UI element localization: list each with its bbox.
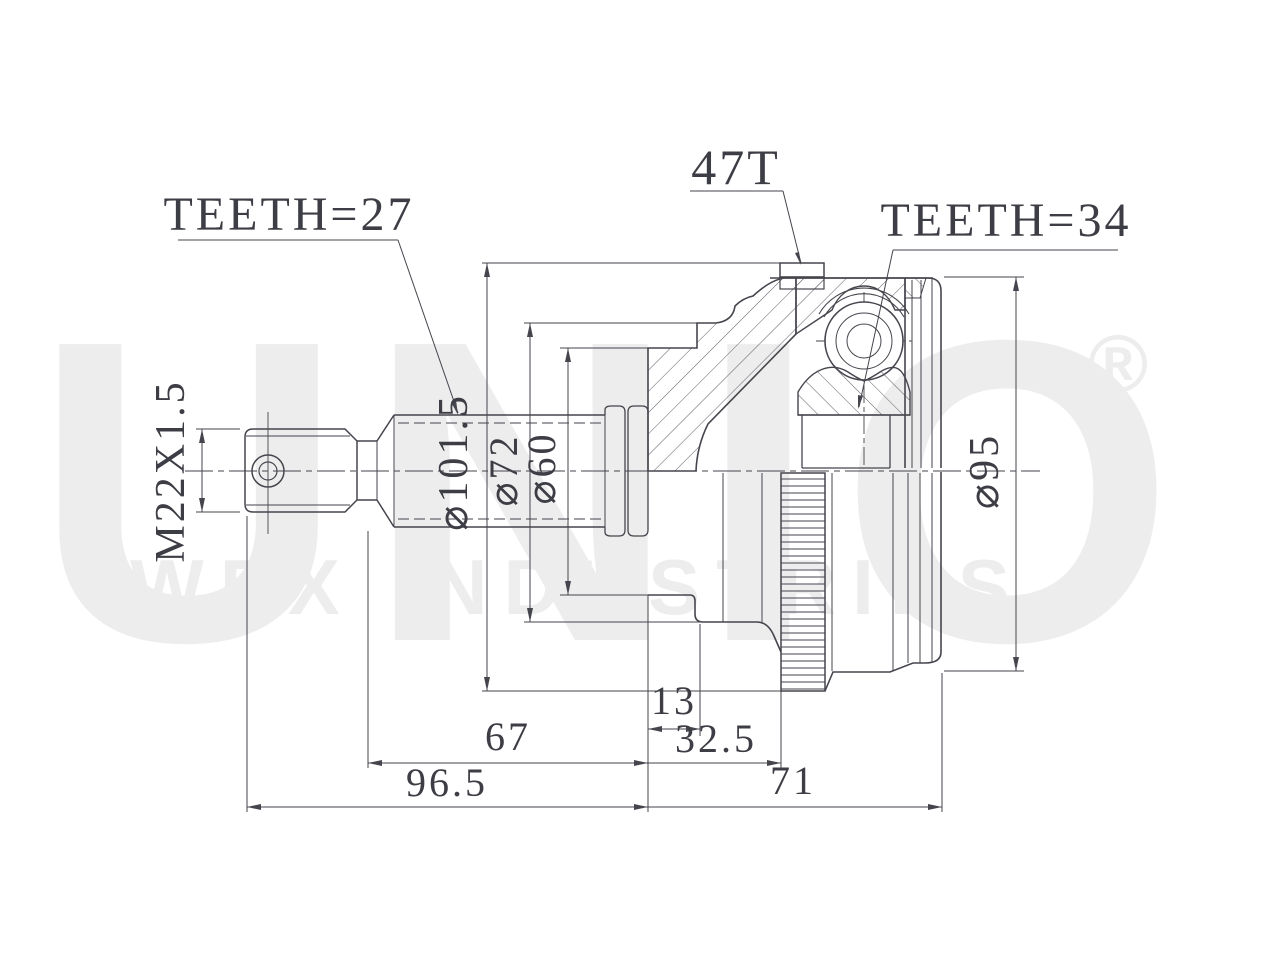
watermark-subtitle: WEX INDUSTRIES — [130, 543, 1026, 631]
ring-outer-dia-label: ⌀101.5 — [431, 393, 477, 531]
abs-tooth-band — [781, 473, 825, 691]
drawing-canvas: UNIO ® WEX INDUSTRIES — [0, 0, 1280, 960]
joint-spline-teeth-label: TEETH=34 — [880, 194, 1131, 247]
cv-joint-technical-drawing: UNIO ® WEX INDUSTRIES — [0, 0, 1280, 960]
abs-ring-teeth-label: 47T — [691, 139, 781, 195]
shaft-length-label: 67 — [485, 714, 531, 759]
shaft-spline-teeth-label: TEETH=27 — [163, 188, 414, 241]
joint-width-label: 71 — [770, 758, 816, 803]
dimension-71: 71 — [648, 758, 942, 810]
face-to-ring-label: 32.5 — [675, 716, 757, 761]
race-outer-dia-label: ⌀95 — [962, 433, 1008, 509]
watermark: UNIO ® WEX INDUSTRIES — [34, 252, 1197, 732]
watermark-brand: UNIO — [34, 252, 1197, 732]
dimension-96-5: 96.5 — [247, 760, 648, 810]
thread-spec-label: M22X1.5 — [148, 379, 194, 562]
callout-abs-ring: 47T — [690, 139, 801, 265]
watermark-registered-icon: ® — [1088, 319, 1148, 410]
boot-small-dia-label: ⌀60 — [519, 431, 564, 504]
shaft-overall-label: 96.5 — [406, 760, 488, 805]
